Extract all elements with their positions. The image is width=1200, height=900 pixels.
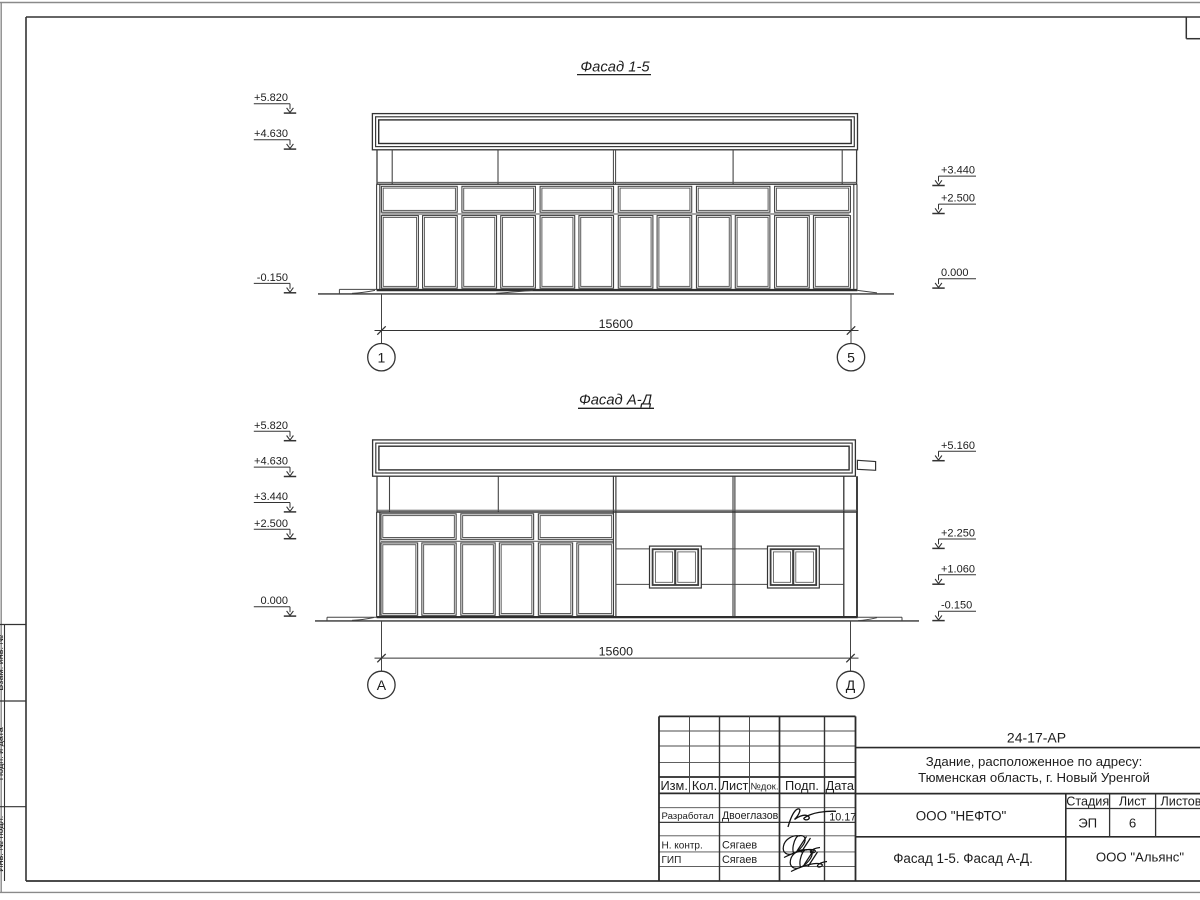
svg-text:+2.250: +2.250 <box>941 528 975 540</box>
svg-text:Кол.: Кол. <box>692 778 717 793</box>
svg-text:+3.440: +3.440 <box>254 491 288 503</box>
svg-text:24-17-АР: 24-17-АР <box>1007 730 1066 746</box>
svg-text:+1.060: +1.060 <box>941 563 975 575</box>
svg-text:0.000: 0.000 <box>941 267 969 279</box>
svg-text:Разработал: Разработал <box>662 811 714 822</box>
svg-text:Тюменская область, г. Новый Ур: Тюменская область, г. Новый Уренгой <box>918 770 1150 785</box>
svg-text:+5.820: +5.820 <box>254 92 288 104</box>
svg-text:ЭП: ЭП <box>1078 816 1097 831</box>
svg-text:Д: Д <box>846 677 856 693</box>
svg-text:+2.500: +2.500 <box>941 193 975 205</box>
svg-text:Фасад 1-5: Фасад 1-5 <box>580 59 650 75</box>
svg-text:Н. контр.: Н. контр. <box>662 841 703 852</box>
svg-text:-0.150: -0.150 <box>941 600 972 612</box>
svg-text:6: 6 <box>1129 816 1136 831</box>
svg-text:№док.: №док. <box>750 781 778 792</box>
svg-text:Подп. и дата: Подп. и дата <box>0 727 5 780</box>
svg-text:Изм.: Изм. <box>660 778 687 793</box>
svg-text:Инв. № подл.: Инв. № подл. <box>0 816 5 872</box>
svg-text:А: А <box>377 677 387 693</box>
svg-text:Дата: Дата <box>826 778 855 793</box>
svg-text:Стадия: Стадия <box>1066 794 1109 808</box>
svg-text:Двоеглазов: Двоеглазов <box>722 810 779 822</box>
svg-text:+5.820: +5.820 <box>254 420 288 432</box>
svg-text:Фасад А-Д: Фасад А-Д <box>579 392 652 408</box>
svg-text:+5.160: +5.160 <box>941 440 975 452</box>
svg-text:+2.500: +2.500 <box>254 518 288 530</box>
svg-text:ООО "Альянс": ООО "Альянс" <box>1096 850 1184 865</box>
svg-text:Сягаев: Сягаев <box>722 854 757 866</box>
svg-text:15600: 15600 <box>599 644 634 658</box>
svg-text:Взам. инв. №: Взам. инв. № <box>0 634 5 690</box>
svg-text:Лист: Лист <box>1119 794 1147 808</box>
svg-text:Здание, расположенное по адрес: Здание, расположенное по адресу: <box>926 754 1143 769</box>
svg-text:ООО "НЕФТО": ООО "НЕФТО" <box>916 809 1007 824</box>
svg-text:ГИП: ГИП <box>662 855 682 866</box>
svg-text:+3.440: +3.440 <box>941 165 975 177</box>
svg-text:-0.150: -0.150 <box>257 272 288 284</box>
svg-text:0.000: 0.000 <box>260 595 288 607</box>
svg-text:+4.630: +4.630 <box>254 128 288 140</box>
svg-text:Лист: Лист <box>721 778 749 793</box>
svg-text:Листов: Листов <box>1161 794 1200 808</box>
svg-text:15600: 15600 <box>599 317 634 331</box>
svg-text:Подп.: Подп. <box>785 778 819 793</box>
svg-text:Сягаев: Сягаев <box>722 840 757 852</box>
svg-text:+4.630: +4.630 <box>254 456 288 468</box>
svg-text:Фасад 1-5. Фасад А-Д.: Фасад 1-5. Фасад А-Д. <box>893 851 1033 866</box>
svg-text:1: 1 <box>378 349 386 365</box>
svg-text:10.17: 10.17 <box>829 811 856 823</box>
svg-text:5: 5 <box>847 349 855 365</box>
